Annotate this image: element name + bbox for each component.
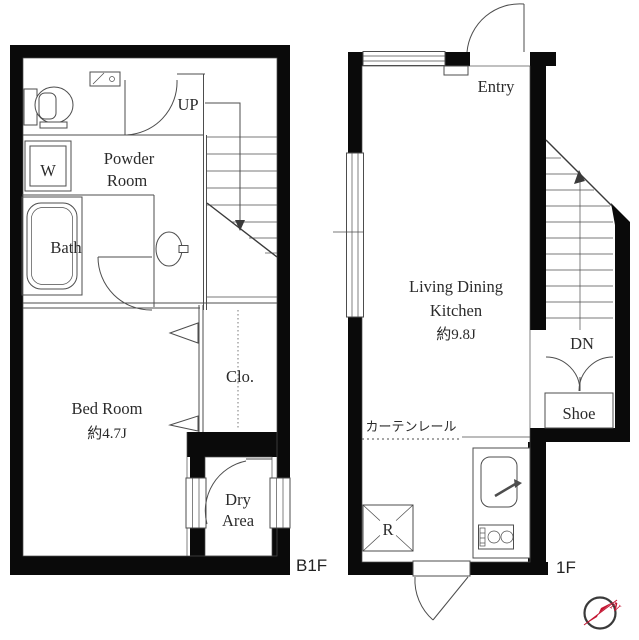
refrigerator-label: R (382, 520, 393, 539)
up-label: UP (177, 95, 198, 114)
dry-area-label-1: Dry (225, 490, 251, 509)
bedroom-size-label: 約4.7J (87, 425, 127, 442)
ldk-size-label: 約9.8J (436, 326, 476, 343)
north-indicator: N (584, 598, 624, 629)
closet-label: Clo. (226, 367, 254, 386)
washer-box: W (25, 141, 71, 191)
f1-left-window (333, 153, 364, 317)
f1-bottom-door (413, 561, 470, 620)
dry-area-label-2: Area (222, 511, 255, 530)
kitchen-counter (473, 448, 530, 558)
powder-room-label-1: Powder (104, 149, 155, 168)
floor-plan-page: W Bath Powder Room (0, 0, 639, 640)
ldk-label-1: Living Dining (409, 277, 503, 296)
washer-label: W (40, 161, 56, 180)
powder-bedroom-door (98, 257, 152, 310)
b1f-stairs: UP (177, 74, 277, 310)
f1-plan: Entry DN (333, 4, 630, 620)
powder-room-label-2: Room (107, 171, 148, 190)
toilet (24, 87, 73, 128)
down-label: DN (570, 334, 594, 353)
bath-label: Bath (50, 238, 82, 257)
hand-wash-basin (90, 72, 120, 86)
bath-room: Bath (22, 195, 154, 295)
powder-sink (154, 195, 188, 307)
f1-top-window (363, 52, 445, 66)
f1-stairs: DN (546, 140, 613, 353)
f1-floor-label: 1F (556, 558, 576, 577)
curtain-rail: カーテンレール (362, 420, 530, 439)
shoe-label: Shoe (563, 404, 596, 423)
dry-area-window-left (186, 478, 206, 528)
closet-door-mark-top (170, 323, 198, 343)
closet: Clo. (170, 310, 254, 431)
b1f-entry-door (125, 80, 177, 135)
floor-plan-drawing: W Bath Powder Room (0, 0, 639, 640)
refrigerator-box: R (363, 505, 413, 551)
dry-area-window-right (270, 478, 290, 528)
shoe-cabinet: Shoe (545, 357, 613, 428)
curtain-rail-label: カーテンレール (365, 420, 456, 435)
b1f-interior-outline (23, 58, 277, 556)
stair-direction-line (205, 103, 240, 222)
entry-label: Entry (478, 77, 515, 96)
b1f-floor-label: B1F (296, 556, 327, 575)
b1f-plan: W Bath Powder Room (10, 45, 327, 575)
ldk-label-2: Kitchen (430, 301, 482, 320)
closet-door-mark-bottom (170, 416, 198, 431)
bedroom-label: Bed Room (71, 399, 142, 418)
